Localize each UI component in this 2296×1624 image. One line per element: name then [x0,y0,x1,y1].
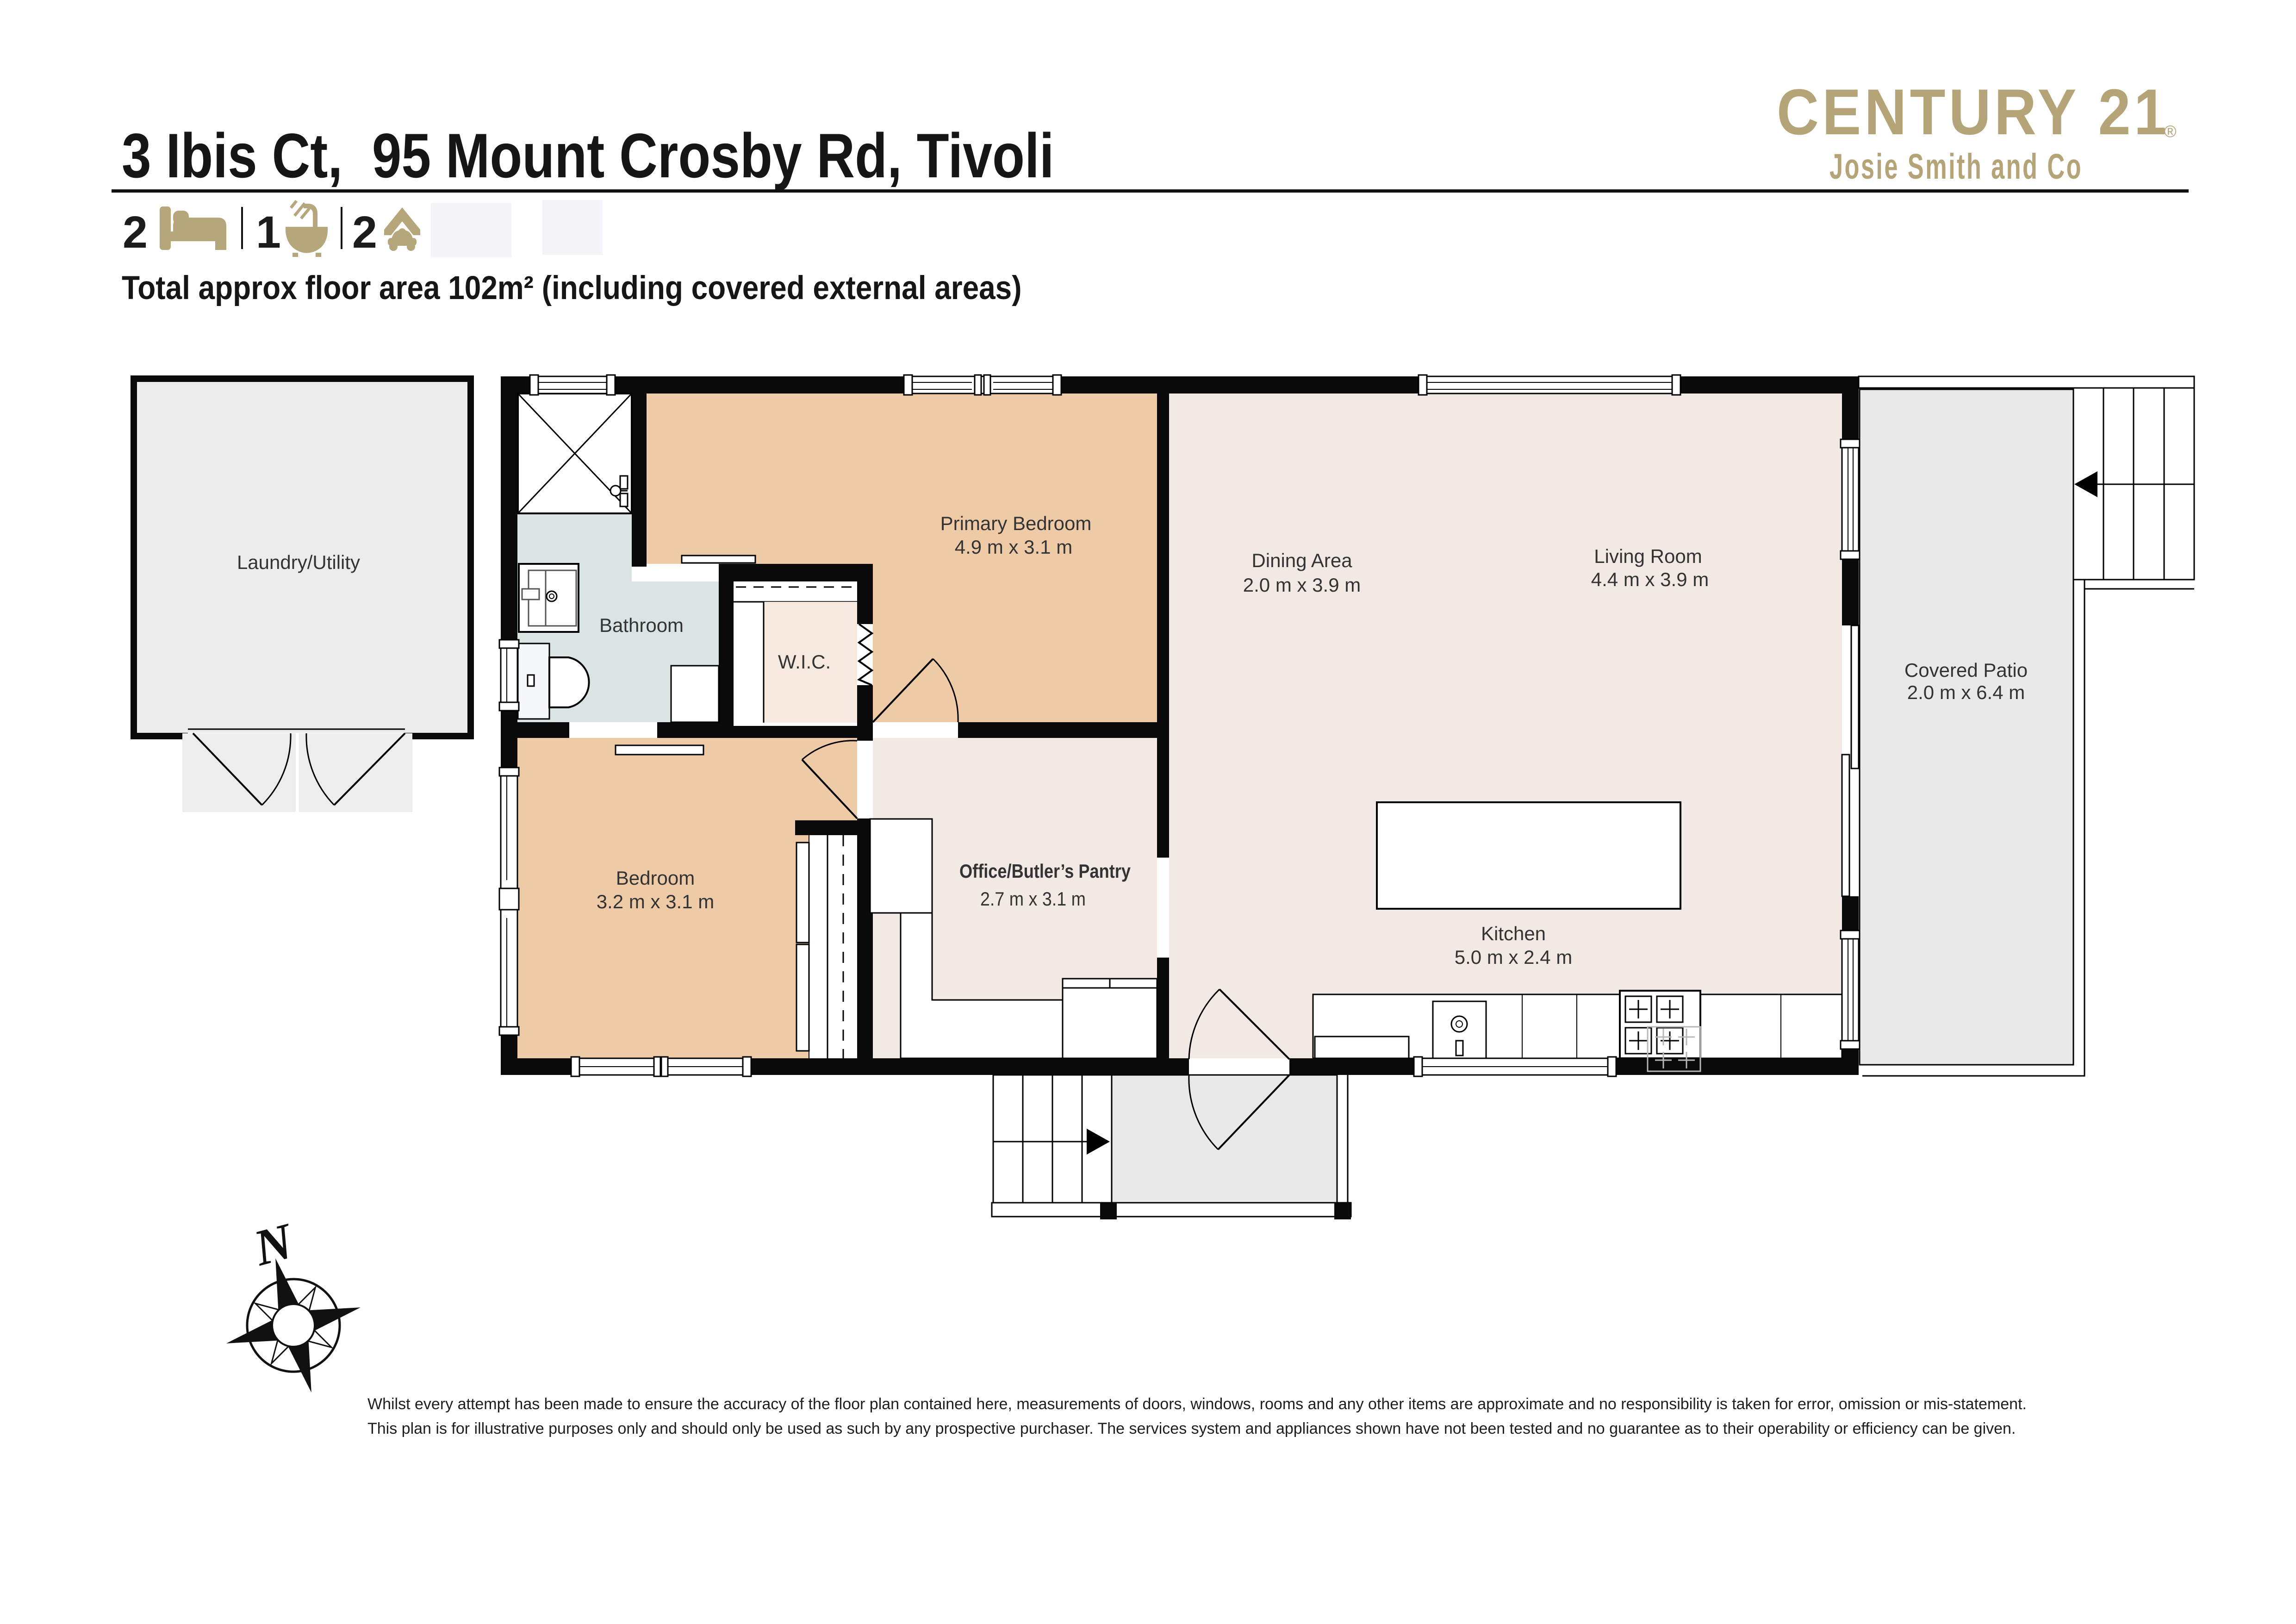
svg-text:2.7 m x 3.1 m: 2.7 m x 3.1 m [980,888,1086,910]
svg-text:Dining Area: Dining Area [1251,550,1352,571]
svg-text:3.2 m x 3.1 m: 3.2 m x 3.1 m [597,891,714,912]
svg-text:2: 2 [123,207,148,257]
svg-text:W.I.C.: W.I.C. [778,651,831,673]
svg-text:1: 1 [256,207,281,257]
svg-text:CENTURY 21: CENTURY 21 [1777,76,2170,149]
svg-text:Whilst every attempt has been: Whilst every attempt has been made to en… [367,1395,2027,1413]
svg-text:4.9 m x 3.1 m: 4.9 m x 3.1 m [955,536,1072,558]
svg-text:3 Ibis Ct, 95 Mount Crosby Rd: 3 Ibis Ct, 95 Mount Crosby Rd, Tivoli [122,120,1054,191]
svg-text:Total approx floor area 102m²: Total approx floor area 102m² (including… [122,270,1021,306]
svg-text:®: ® [2164,122,2177,141]
svg-text:Office/Butler’s Pantry: Office/Butler’s Pantry [959,860,1131,882]
svg-text:4.4 m x 3.9 m: 4.4 m x 3.9 m [1591,568,1709,590]
svg-text:Primary Bedroom: Primary Bedroom [940,512,1092,534]
svg-text:This plan is for illustrative: This plan is for illustrative purposes o… [367,1420,2016,1437]
svg-text:5.0 m x 2.4 m: 5.0 m x 2.4 m [1455,946,1572,968]
svg-text:2.0 m x 3.9 m: 2.0 m x 3.9 m [1243,574,1361,596]
svg-text:2: 2 [352,207,377,257]
svg-text:Bathroom: Bathroom [599,614,684,636]
svg-text:Laundry/Utility: Laundry/Utility [237,551,360,573]
svg-text:2.0 m x 6.4 m: 2.0 m x 6.4 m [1907,681,2025,703]
svg-text:Living Room: Living Room [1594,545,1702,567]
svg-text:Josie Smith and Co: Josie Smith and Co [1829,146,2083,187]
svg-text:Covered Patio: Covered Patio [1904,659,2028,681]
svg-text:Bedroom: Bedroom [616,867,695,889]
svg-text:Kitchen: Kitchen [1481,923,1546,944]
